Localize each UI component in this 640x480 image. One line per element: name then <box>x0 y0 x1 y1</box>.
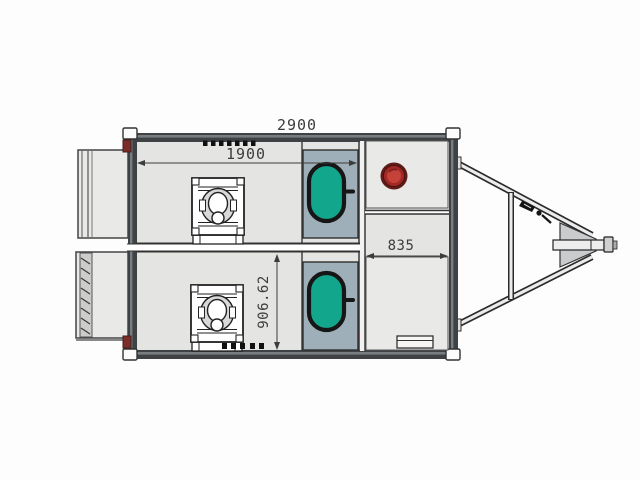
entry-step <box>397 336 433 348</box>
corner-fitting-bottom-right <box>446 349 460 360</box>
dim-right-compartment-label: 835 <box>388 238 415 254</box>
corner-fitting-bottom-left <box>123 349 137 360</box>
dim-room-depth-label: 906.62 <box>256 275 272 329</box>
squat-toilet-icon-bottom <box>191 285 243 351</box>
left-wheel-lower <box>76 252 130 340</box>
drawbar-frame <box>451 157 617 331</box>
dim-interior-width-label: 1900 <box>226 145 266 163</box>
corner-fitting-top-left <box>123 128 137 139</box>
left-wheel-upper <box>78 150 128 238</box>
access-cap-icon <box>381 163 408 190</box>
right-wall <box>449 133 458 359</box>
dim-overall-width: 2900 <box>277 116 317 134</box>
corner-accent-bottom-left <box>123 336 131 348</box>
squat-toilet-icon-top <box>192 178 244 244</box>
corner-fitting-top-right <box>446 128 460 139</box>
dim-overall-width-label: 2900 <box>277 116 317 134</box>
floor-plan-canvas: 2900 1900 906.62 835 <box>0 0 640 480</box>
mid-divider-wall <box>136 244 360 251</box>
tire-tread <box>80 253 92 337</box>
trailer-floor-plan: 2900 1900 906.62 835 <box>0 0 640 480</box>
corner-accent-top-left <box>123 140 131 152</box>
